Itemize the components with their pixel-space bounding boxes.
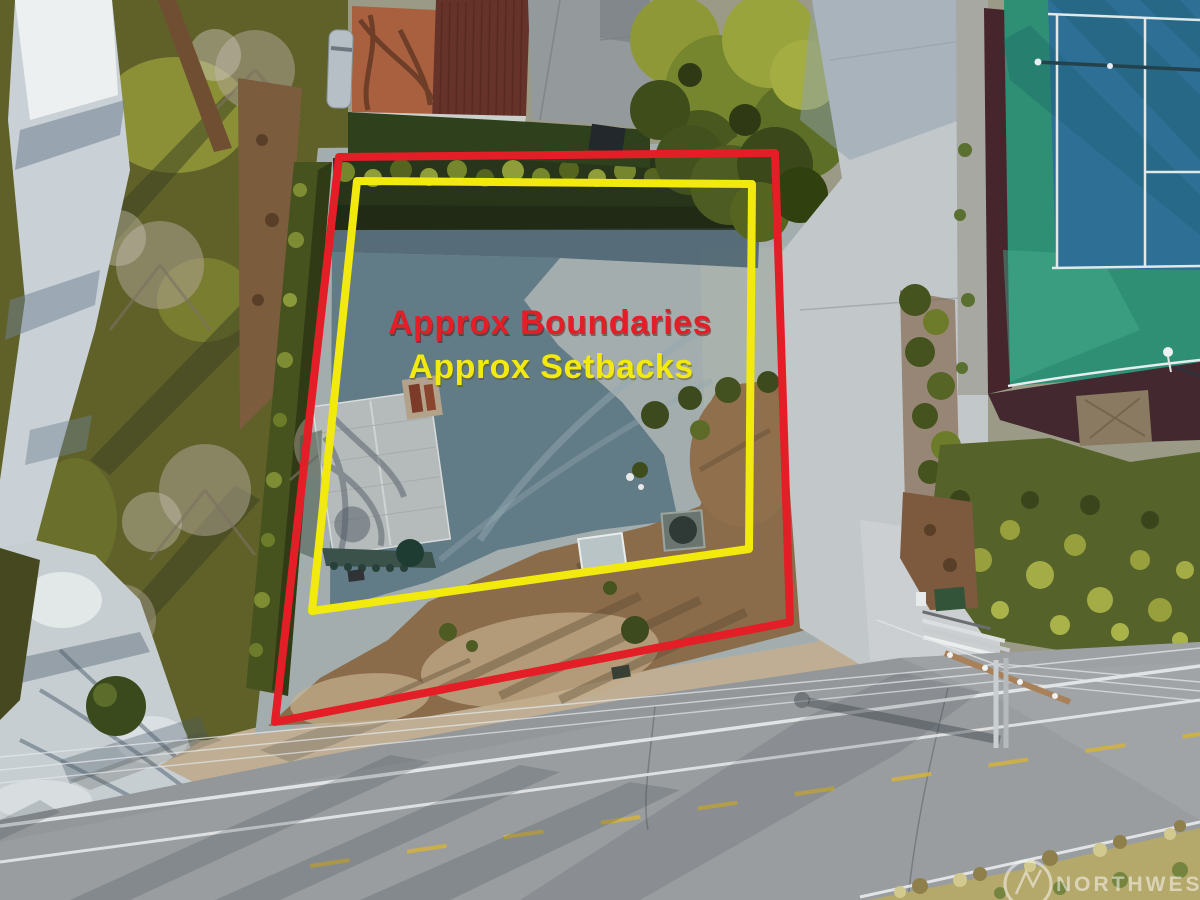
neighbor-north (327, 0, 650, 168)
tarp (934, 587, 966, 612)
hot-tub (669, 516, 697, 544)
hoop-post (1163, 347, 1173, 357)
small-equipment (916, 592, 926, 606)
setbacks-label: Approx Setbacks (408, 348, 693, 386)
boundaries-label: Approx Boundaries (388, 304, 712, 342)
bush (396, 539, 424, 567)
atv (588, 124, 625, 154)
aerial-lot-photo: Approx Boundaries Approx Setbacks NORTHW… (0, 0, 1200, 900)
parked-suv (327, 30, 354, 109)
aerial-photo-canvas: Approx Boundaries Approx Setbacks NORTHW… (0, 0, 1200, 900)
tennis-court (954, 0, 1200, 446)
watermark-text: NORTHWEST (1056, 873, 1200, 896)
round-bush (86, 676, 146, 736)
